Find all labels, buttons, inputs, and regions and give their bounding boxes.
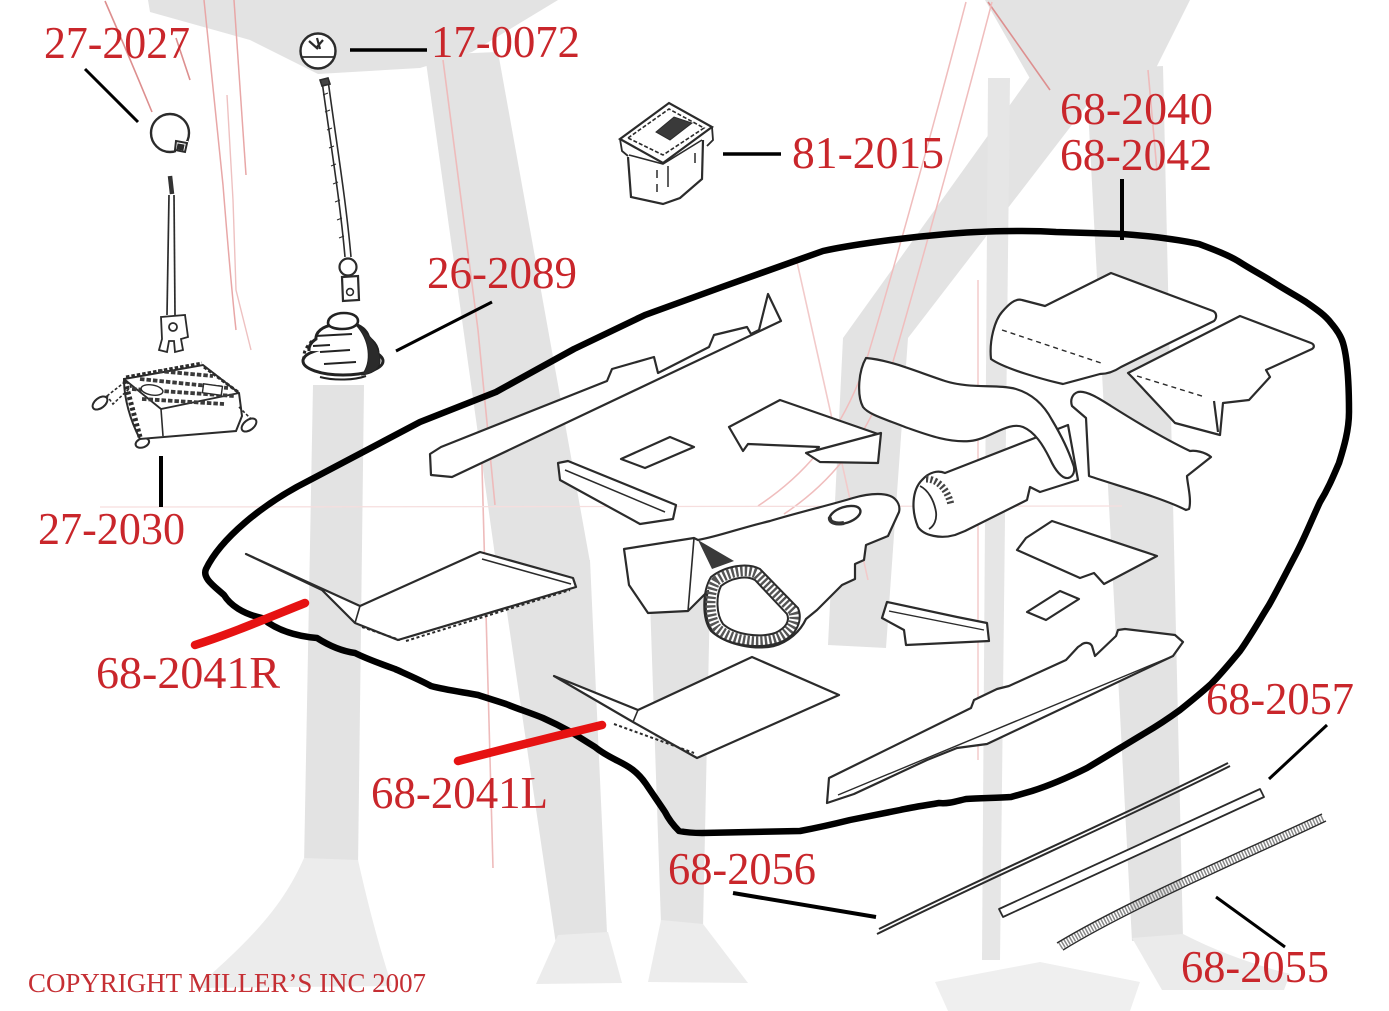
svg-text:27-2027: 27-2027: [44, 17, 190, 68]
svg-text:26-2089: 26-2089: [427, 247, 577, 298]
svg-text:81-2015: 81-2015: [792, 127, 944, 178]
svg-text:68-2040: 68-2040: [1060, 83, 1213, 134]
svg-text:COPYRIGHT MILLER’S INC 2007: COPYRIGHT MILLER’S INC 2007: [28, 968, 426, 998]
svg-text:68-2055: 68-2055: [1181, 941, 1329, 992]
svg-text:17-0072: 17-0072: [431, 16, 580, 67]
svg-text:68-2041L: 68-2041L: [371, 767, 548, 818]
svg-text:27-2030: 27-2030: [38, 503, 185, 554]
svg-text:68-2041R: 68-2041R: [96, 647, 280, 698]
svg-text:68-2042: 68-2042: [1060, 129, 1212, 180]
svg-text:68-2057: 68-2057: [1206, 673, 1354, 724]
svg-text:68-2056: 68-2056: [668, 843, 816, 894]
